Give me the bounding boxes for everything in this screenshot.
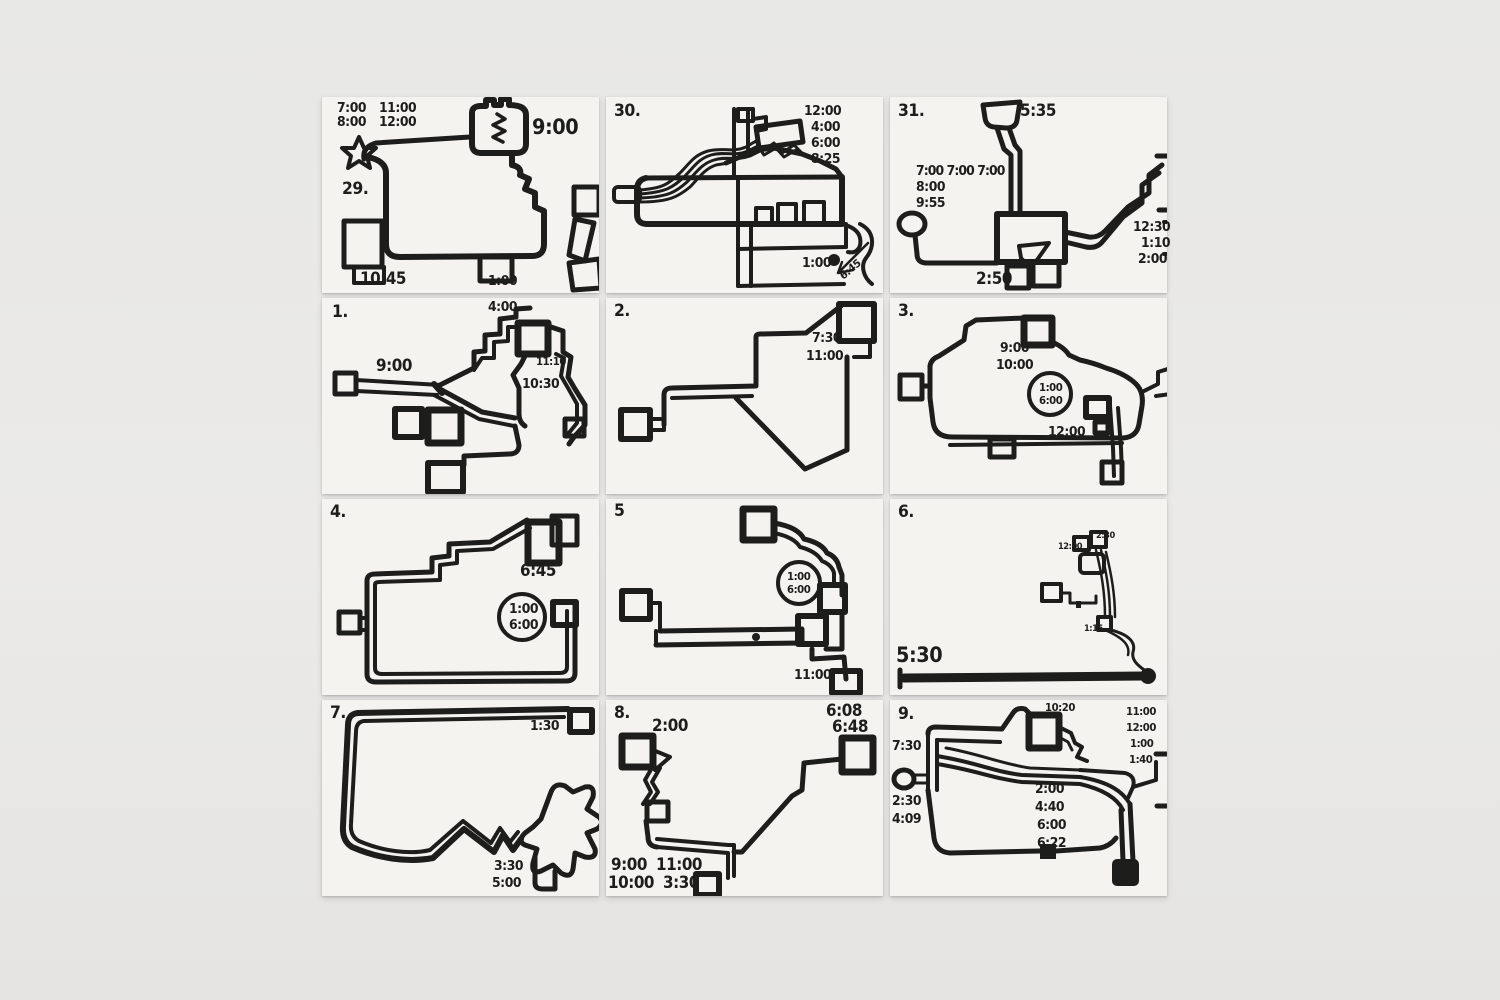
route-map-3 bbox=[890, 298, 1167, 494]
panel-number: 1. bbox=[332, 304, 348, 321]
time-label: 10:30 bbox=[522, 378, 559, 392]
time-label: 5:00 bbox=[492, 877, 521, 891]
time-label: 6:45 bbox=[520, 563, 556, 580]
time-label: 2:00 bbox=[652, 718, 688, 735]
route-map-2 bbox=[606, 298, 883, 494]
time-label: 1:00 bbox=[1039, 382, 1062, 393]
time-label: 1:00 bbox=[1130, 738, 1153, 749]
time-label: 5:30 bbox=[896, 645, 942, 666]
time-label: 8:00 bbox=[916, 181, 945, 195]
panel-number: 7. bbox=[330, 705, 346, 722]
time-label: 1:00 bbox=[509, 603, 538, 617]
panel-number: 30. bbox=[614, 103, 640, 120]
time-label: 2:00 bbox=[1138, 253, 1167, 267]
panel-number: 2. bbox=[614, 303, 630, 320]
drawing-panel-1: 1. 4:00 9:00 11:10 10:30 bbox=[322, 298, 599, 494]
drawing-panel-29: 29. 7:00 8:00 11:00 12:00 9:00 10:45 1:0… bbox=[322, 97, 599, 293]
time-label: 2:00 bbox=[1035, 783, 1064, 797]
time-label: 1:30 bbox=[530, 720, 559, 734]
time-label: 6:00 bbox=[1039, 395, 1062, 406]
time-label: 2:30 bbox=[1096, 532, 1115, 541]
time-label: 12:00 bbox=[1058, 543, 1082, 552]
drawing-panel-3: 3. 9:00 10:00 1:00 6:00 12:00 bbox=[890, 298, 1167, 494]
route-map-4 bbox=[322, 499, 599, 695]
time-label: 3:30 bbox=[663, 875, 699, 892]
time-label: 7:00 7:00 7:00 bbox=[916, 165, 1004, 179]
time-label: 5:35 bbox=[1020, 103, 1056, 120]
time-label: 4:40 bbox=[1035, 801, 1064, 815]
time-label: 4:00 bbox=[488, 301, 517, 315]
time-label: 11:00 bbox=[806, 350, 843, 364]
time-label: 1:10 bbox=[1141, 237, 1170, 251]
drawing-panel-7: 7. 1:30 3:30 5:00 bbox=[322, 700, 599, 896]
time-label: 6:00 bbox=[787, 584, 810, 595]
drawing-panel-9: 9. 10:20 11:00 12:00 1:00 1:40 7:30 2:30… bbox=[890, 700, 1167, 896]
time-label: 9:00 bbox=[1000, 342, 1029, 356]
time-label: 3:30 bbox=[494, 860, 523, 874]
time-label: 8:25 bbox=[811, 153, 840, 167]
time-label: 9:00 bbox=[376, 358, 412, 375]
time-label: 4:09 bbox=[892, 813, 921, 827]
time-label: 6:00 bbox=[1037, 819, 1066, 833]
drawing-panel-30: 30. 12:00 4:00 6:00 8:25 1:00 6:45 bbox=[606, 97, 883, 293]
time-label: 1:00 bbox=[787, 571, 810, 582]
time-label: 7:30 bbox=[812, 332, 841, 346]
time-label: 10:00 bbox=[608, 875, 654, 892]
time-label: 10:45 bbox=[360, 271, 406, 288]
panel-number: 4. bbox=[330, 504, 346, 521]
time-label: 10:20 bbox=[1045, 702, 1075, 713]
time-label: 9:55 bbox=[916, 197, 945, 211]
time-label: 6:00 bbox=[811, 137, 840, 151]
route-map-5 bbox=[606, 499, 883, 695]
time-label: 7:30 bbox=[892, 740, 921, 754]
time-label: 11:00 bbox=[794, 669, 831, 683]
time-label: 10:00 bbox=[996, 359, 1033, 373]
time-label: 2:50 bbox=[976, 271, 1012, 288]
drawing-panel-5: 5 1:00 6:00 11:00 bbox=[606, 499, 883, 695]
panel-number: 5 bbox=[614, 503, 624, 520]
panel-number: 8. bbox=[614, 705, 630, 722]
time-label: 11:00 bbox=[1126, 706, 1156, 717]
time-label: 8:00 bbox=[337, 116, 366, 130]
time-label: 12:00 bbox=[1126, 722, 1156, 733]
panel-number: 6. bbox=[898, 504, 914, 521]
route-map-30 bbox=[606, 97, 883, 293]
time-label: 4:00 bbox=[811, 121, 840, 135]
time-label: 12:00 bbox=[1048, 426, 1085, 440]
time-label: 11:00 bbox=[656, 857, 702, 874]
time-label: 12:00 bbox=[804, 105, 841, 119]
time-label: 1:00 bbox=[488, 275, 517, 289]
time-label: 6:48 bbox=[832, 719, 868, 736]
panel-number: 9. bbox=[898, 706, 914, 723]
time-label: 9:00 bbox=[611, 857, 647, 874]
time-label: 9:00 bbox=[532, 117, 578, 138]
drawing-panel-2: 2. 7:30 11:00 bbox=[606, 298, 883, 494]
time-label: 2:30 bbox=[892, 795, 921, 809]
drawing-panel-6: 6. 2:30 12:00 1:15 5:30 bbox=[890, 499, 1167, 695]
panel-number: 3. bbox=[898, 303, 914, 320]
drawing-panel-31: 31. 5:35 7:00 7:00 7:00 8:00 9:55 12:30 … bbox=[890, 97, 1167, 293]
time-label: 6:22 bbox=[1037, 837, 1066, 851]
panel-number: 31. bbox=[898, 103, 924, 120]
time-label: 1:40 bbox=[1129, 754, 1152, 765]
time-label: 11:10 bbox=[536, 356, 566, 367]
panel-number: 29. bbox=[342, 181, 368, 198]
time-label: 6:00 bbox=[509, 619, 538, 633]
time-label: 1:00 bbox=[802, 257, 831, 271]
artwork-grid: 29. 7:00 8:00 11:00 12:00 9:00 10:45 1:0… bbox=[322, 97, 1167, 896]
time-label: 12:30 bbox=[1133, 221, 1170, 235]
time-label: 12:00 bbox=[379, 116, 416, 130]
drawing-panel-4: 4. 6:45 1:00 6:00 bbox=[322, 499, 599, 695]
route-map-1 bbox=[322, 298, 599, 494]
time-label: 1:15 bbox=[1084, 625, 1103, 634]
drawing-panel-8: 8. 2:00 6:08 6:48 9:00 10:00 11:00 3:30 bbox=[606, 700, 883, 896]
